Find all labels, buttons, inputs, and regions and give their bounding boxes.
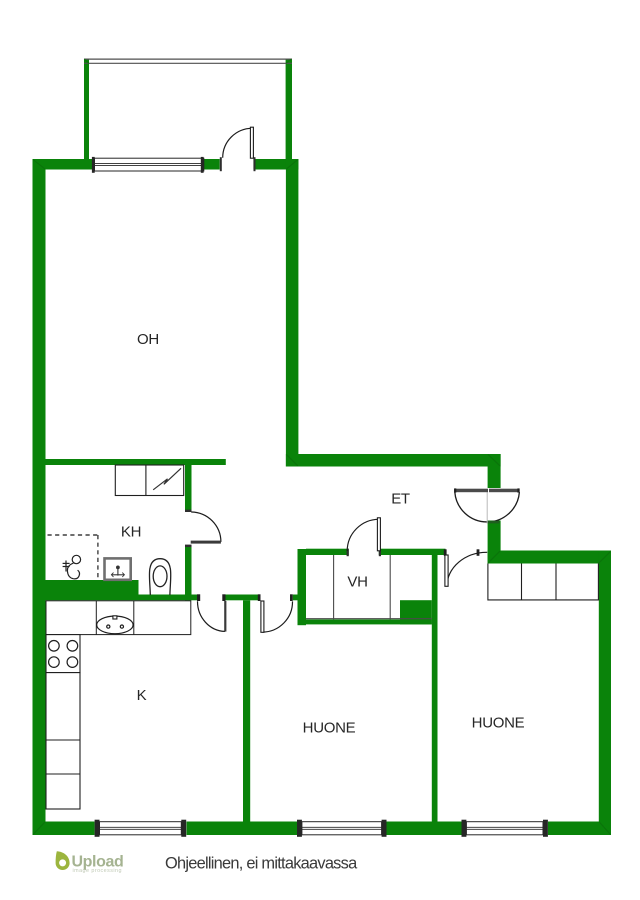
svg-text:KH: KH	[121, 523, 141, 540]
svg-text:HUONE: HUONE	[472, 714, 525, 731]
svg-text:VH: VH	[347, 573, 367, 590]
svg-text:OH: OH	[137, 331, 159, 348]
svg-text:ET: ET	[391, 491, 410, 508]
svg-text:HUONE: HUONE	[303, 720, 356, 737]
svg-text:K: K	[137, 687, 147, 704]
svg-text:image processing: image processing	[73, 868, 122, 874]
svg-text:Ohjeellinen, ei mittakaavassa: Ohjeellinen, ei mittakaavassa	[165, 854, 358, 872]
